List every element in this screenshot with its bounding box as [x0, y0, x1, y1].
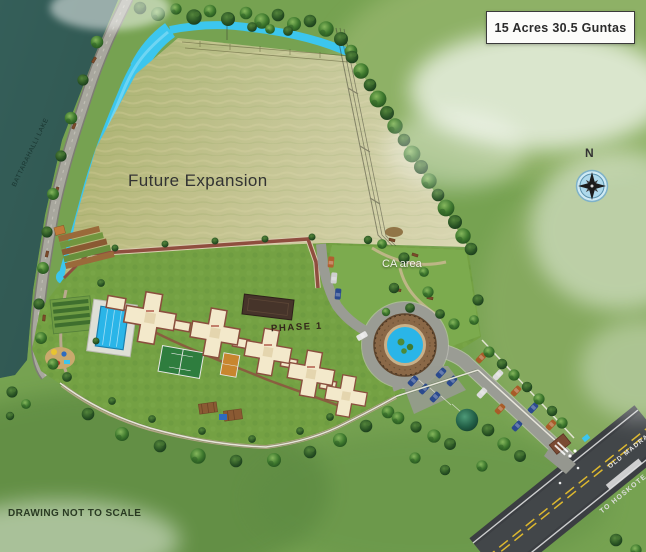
basketball-court — [220, 353, 240, 377]
site-plan-drawing — [0, 0, 646, 552]
compass-rose — [577, 171, 608, 202]
site-plan-canvas: 15 Acres 30.5 Guntas Future Expansion CA… — [0, 0, 646, 552]
fountain-roundabout — [374, 314, 436, 376]
garden-beds — [50, 296, 93, 334]
